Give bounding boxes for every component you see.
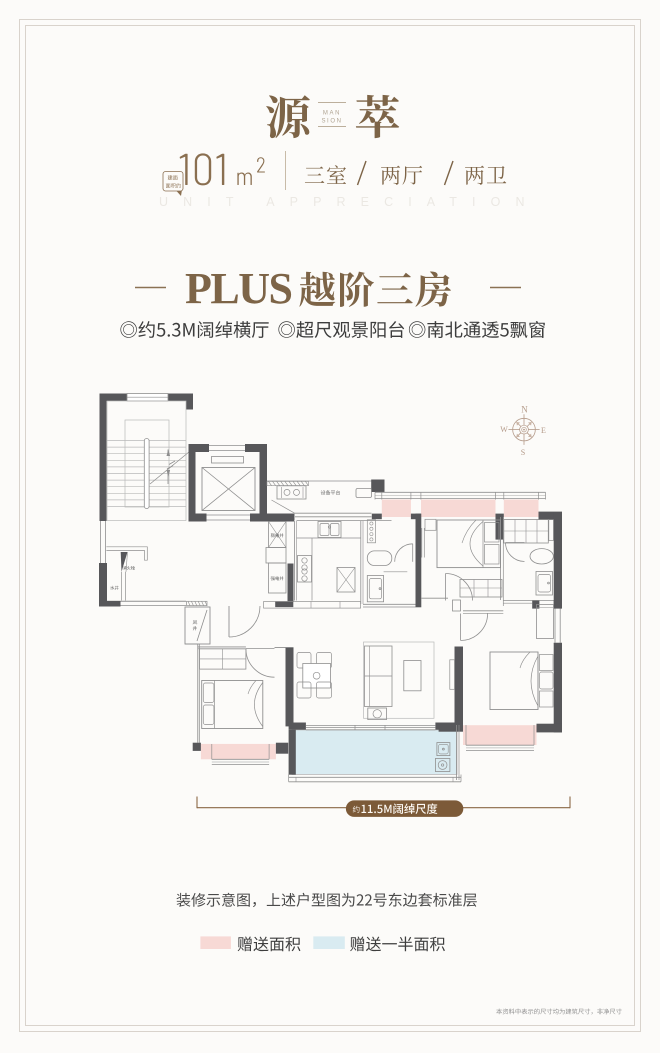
svg-text:UNIT APPRECIATION: UNIT APPRECIATION xyxy=(159,195,540,209)
svg-text:W: W xyxy=(500,425,508,434)
svg-text:SION: SION xyxy=(321,119,342,125)
svg-text:MAN: MAN xyxy=(323,111,341,117)
svg-text:E: E xyxy=(541,426,546,435)
svg-text:S: S xyxy=(521,448,525,457)
svg-text:N: N xyxy=(521,405,528,415)
svg-text:PLUS: PLUS xyxy=(185,264,293,313)
